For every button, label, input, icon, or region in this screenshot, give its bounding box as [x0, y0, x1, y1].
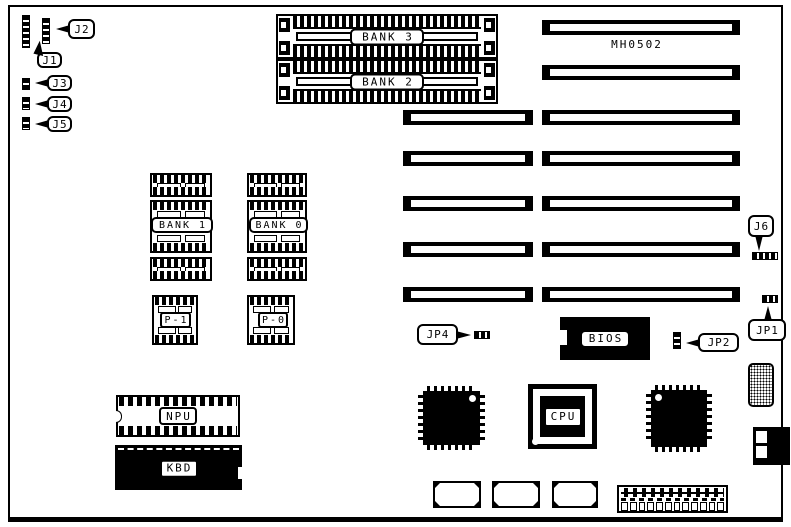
j4-callout: J4: [47, 96, 72, 112]
power-connector: [617, 485, 728, 513]
bank2-label: BANK 2: [350, 73, 424, 90]
board-model-label: MH0502: [597, 38, 677, 51]
npu-label: NPU: [159, 407, 197, 425]
callout-tail-icon: [35, 120, 49, 128]
socket-notch-icon: [116, 410, 122, 423]
j1-pin-header: [22, 15, 30, 48]
npu-socket: NPU: [116, 395, 240, 437]
j3-pin-header: [22, 78, 30, 90]
j6-callout-label: J6: [754, 220, 769, 233]
pad-corner-icon: [591, 501, 596, 506]
simm-latch-icon: [484, 86, 495, 100]
dip-slot-bar: [178, 327, 192, 334]
dip-slot-bar: [253, 327, 271, 334]
simm-contacts: [293, 89, 481, 102]
j3-callout: J3: [47, 75, 72, 91]
chip-dashed-edge: [118, 448, 239, 450]
pad-corner-icon: [494, 501, 499, 506]
bank0-label: BANK 0: [249, 217, 308, 233]
jp1-pin-header: [762, 295, 778, 303]
pin1-dot-icon: [532, 438, 539, 445]
cpu-chip: CPU: [528, 384, 597, 449]
dip-slot-bar: [185, 267, 205, 274]
expansion-slot-16bit-ext: [403, 196, 533, 211]
p0-label: P-0: [258, 312, 288, 328]
dram-dip-socket: [247, 173, 307, 197]
pad-corner-icon: [435, 483, 440, 488]
pad-corner-icon: [554, 501, 559, 506]
bank3-label: BANK 3: [350, 28, 424, 45]
expansion-slot: [542, 65, 740, 80]
chip-notch-icon: [238, 467, 242, 479]
pad-corner-icon: [494, 483, 499, 488]
j1-callout-label: J1: [42, 54, 57, 67]
j1-callout: J1: [37, 52, 62, 68]
j6-callout: J6: [748, 215, 774, 237]
callout-tail-icon: [755, 235, 763, 251]
pad-corner-icon: [533, 483, 538, 488]
power-pin-hole: [682, 502, 689, 511]
chipset-qfp-right: [646, 385, 712, 452]
dip-slot-bar: [281, 235, 300, 242]
pad-corner-icon: [533, 501, 538, 506]
crystal-component: [748, 363, 774, 407]
keyboard-din-connector: [753, 427, 790, 465]
expansion-slot: [542, 287, 740, 302]
simm-contacts: [293, 44, 481, 57]
dip-slot-bar: [157, 267, 181, 274]
simm-latch-icon: [484, 18, 495, 32]
simm-bank-3: BANK 3: [276, 14, 498, 59]
pin1-dot-icon: [655, 394, 662, 401]
power-pin-hole: [674, 502, 681, 511]
dip-slot-bar: [281, 183, 300, 190]
dip-slot-bar: [158, 327, 176, 334]
jp4-callout: JP4: [417, 324, 458, 345]
dip-slot-bar: [157, 183, 181, 190]
din-pin: [756, 446, 767, 458]
simm-slot-bar: [296, 77, 358, 86]
pad-corner-icon: [474, 501, 479, 506]
power-pin-hole: [621, 502, 628, 511]
solder-pad: [433, 481, 481, 508]
power-pin-holes: [619, 502, 726, 511]
dip-slot-bar: [254, 183, 277, 190]
jp2-callout: JP2: [698, 333, 739, 352]
simm-bank-2: BANK 2: [276, 59, 498, 104]
simm-slot-bar: [416, 32, 478, 41]
pad-corner-icon: [591, 483, 596, 488]
dip-slot-bar: [254, 267, 277, 274]
power-pin-bases: [621, 498, 724, 501]
expansion-slot-16bit-ext: [403, 242, 533, 257]
callout-tail-icon: [35, 79, 49, 87]
dip-slot-bar: [157, 235, 181, 242]
cpu-label: CPU: [544, 407, 582, 427]
expansion-slot-16bit-ext: [403, 110, 533, 125]
jp4-callout-label: JP4: [427, 328, 450, 341]
j3-callout-label: J3: [52, 77, 67, 90]
j2-pin-header: [42, 18, 50, 44]
expansion-slot-16bit-ext: [403, 287, 533, 302]
jp1-callout: JP1: [748, 319, 786, 341]
solder-pad: [552, 481, 598, 508]
jp4-pin-header: [474, 331, 490, 339]
p1-label: P-1: [160, 312, 191, 328]
power-pin-hole: [647, 502, 654, 511]
dip-slot-bar: [185, 235, 205, 242]
dip-slot-bar: [274, 327, 289, 334]
power-pin-hole: [709, 502, 716, 511]
simm-latch-icon: [279, 18, 290, 32]
power-pin-hole: [717, 502, 724, 511]
power-pins: [621, 488, 724, 497]
chip-notch-icon: [560, 330, 567, 345]
keyboard-controller-chip: KBD: [115, 445, 242, 490]
j4-callout-label: J4: [52, 98, 67, 111]
bios-label: BIOS: [580, 330, 630, 348]
expansion-slot: [542, 20, 740, 35]
dip-slot-bar: [254, 235, 277, 242]
dram-dip-socket: [247, 257, 307, 281]
jp2-pin-header: [673, 332, 681, 349]
j2-callout: J2: [68, 19, 95, 39]
pad-corner-icon: [435, 501, 440, 506]
power-pin-hole: [691, 502, 698, 511]
pad-corner-icon: [474, 483, 479, 488]
dip-slot-bar: [281, 267, 300, 274]
power-pin-hole: [630, 502, 637, 511]
motherboard-diagram: J2 J1 J3 J4 J5 BANK 3 BANK 2: [0, 0, 791, 527]
j6-pin-header: [752, 252, 778, 260]
callout-tail-icon: [35, 100, 49, 108]
callout-tail-icon: [764, 306, 772, 321]
expansion-slot-16bit-ext: [403, 151, 533, 166]
expansion-slot: [542, 151, 740, 166]
dram-dip-socket: [150, 257, 212, 281]
j5-callout-label: J5: [52, 118, 67, 131]
j2-callout-label: J2: [74, 23, 89, 36]
dram-dip-socket: [150, 173, 212, 197]
simm-latch-icon: [484, 63, 495, 77]
j4-pin-header: [22, 97, 30, 110]
pad-corner-icon: [554, 483, 559, 488]
simm-latch-icon: [279, 86, 290, 100]
callout-tail-icon: [686, 339, 700, 347]
pin1-dot-icon: [469, 395, 476, 402]
din-pin: [756, 431, 767, 443]
j5-pin-header: [22, 117, 30, 130]
bios-chip: BIOS: [560, 317, 650, 360]
simm-latch-icon: [484, 41, 495, 55]
j5-callout: J5: [47, 116, 72, 132]
bank1-label: BANK 1: [151, 217, 213, 233]
dip-slot-bar: [185, 183, 205, 190]
simm-latch-icon: [279, 41, 290, 55]
jp2-callout-label: JP2: [708, 336, 731, 349]
simm-slot-bar: [416, 77, 478, 86]
jp1-callout-label: JP1: [756, 324, 779, 337]
expansion-slot: [542, 196, 740, 211]
power-pin-hole: [665, 502, 672, 511]
simm-slot-bar: [296, 32, 358, 41]
callout-tail-icon: [56, 25, 70, 33]
expansion-slot: [542, 242, 740, 257]
power-pin-hole: [656, 502, 663, 511]
simm-latch-icon: [279, 63, 290, 77]
solder-pad: [492, 481, 540, 508]
chipset-qfp-left: [418, 386, 485, 450]
callout-tail-icon: [456, 331, 471, 339]
power-pin-hole: [700, 502, 707, 511]
power-pin-hole: [639, 502, 646, 511]
kbd-label: KBD: [160, 459, 198, 477]
expansion-slot: [542, 110, 740, 125]
